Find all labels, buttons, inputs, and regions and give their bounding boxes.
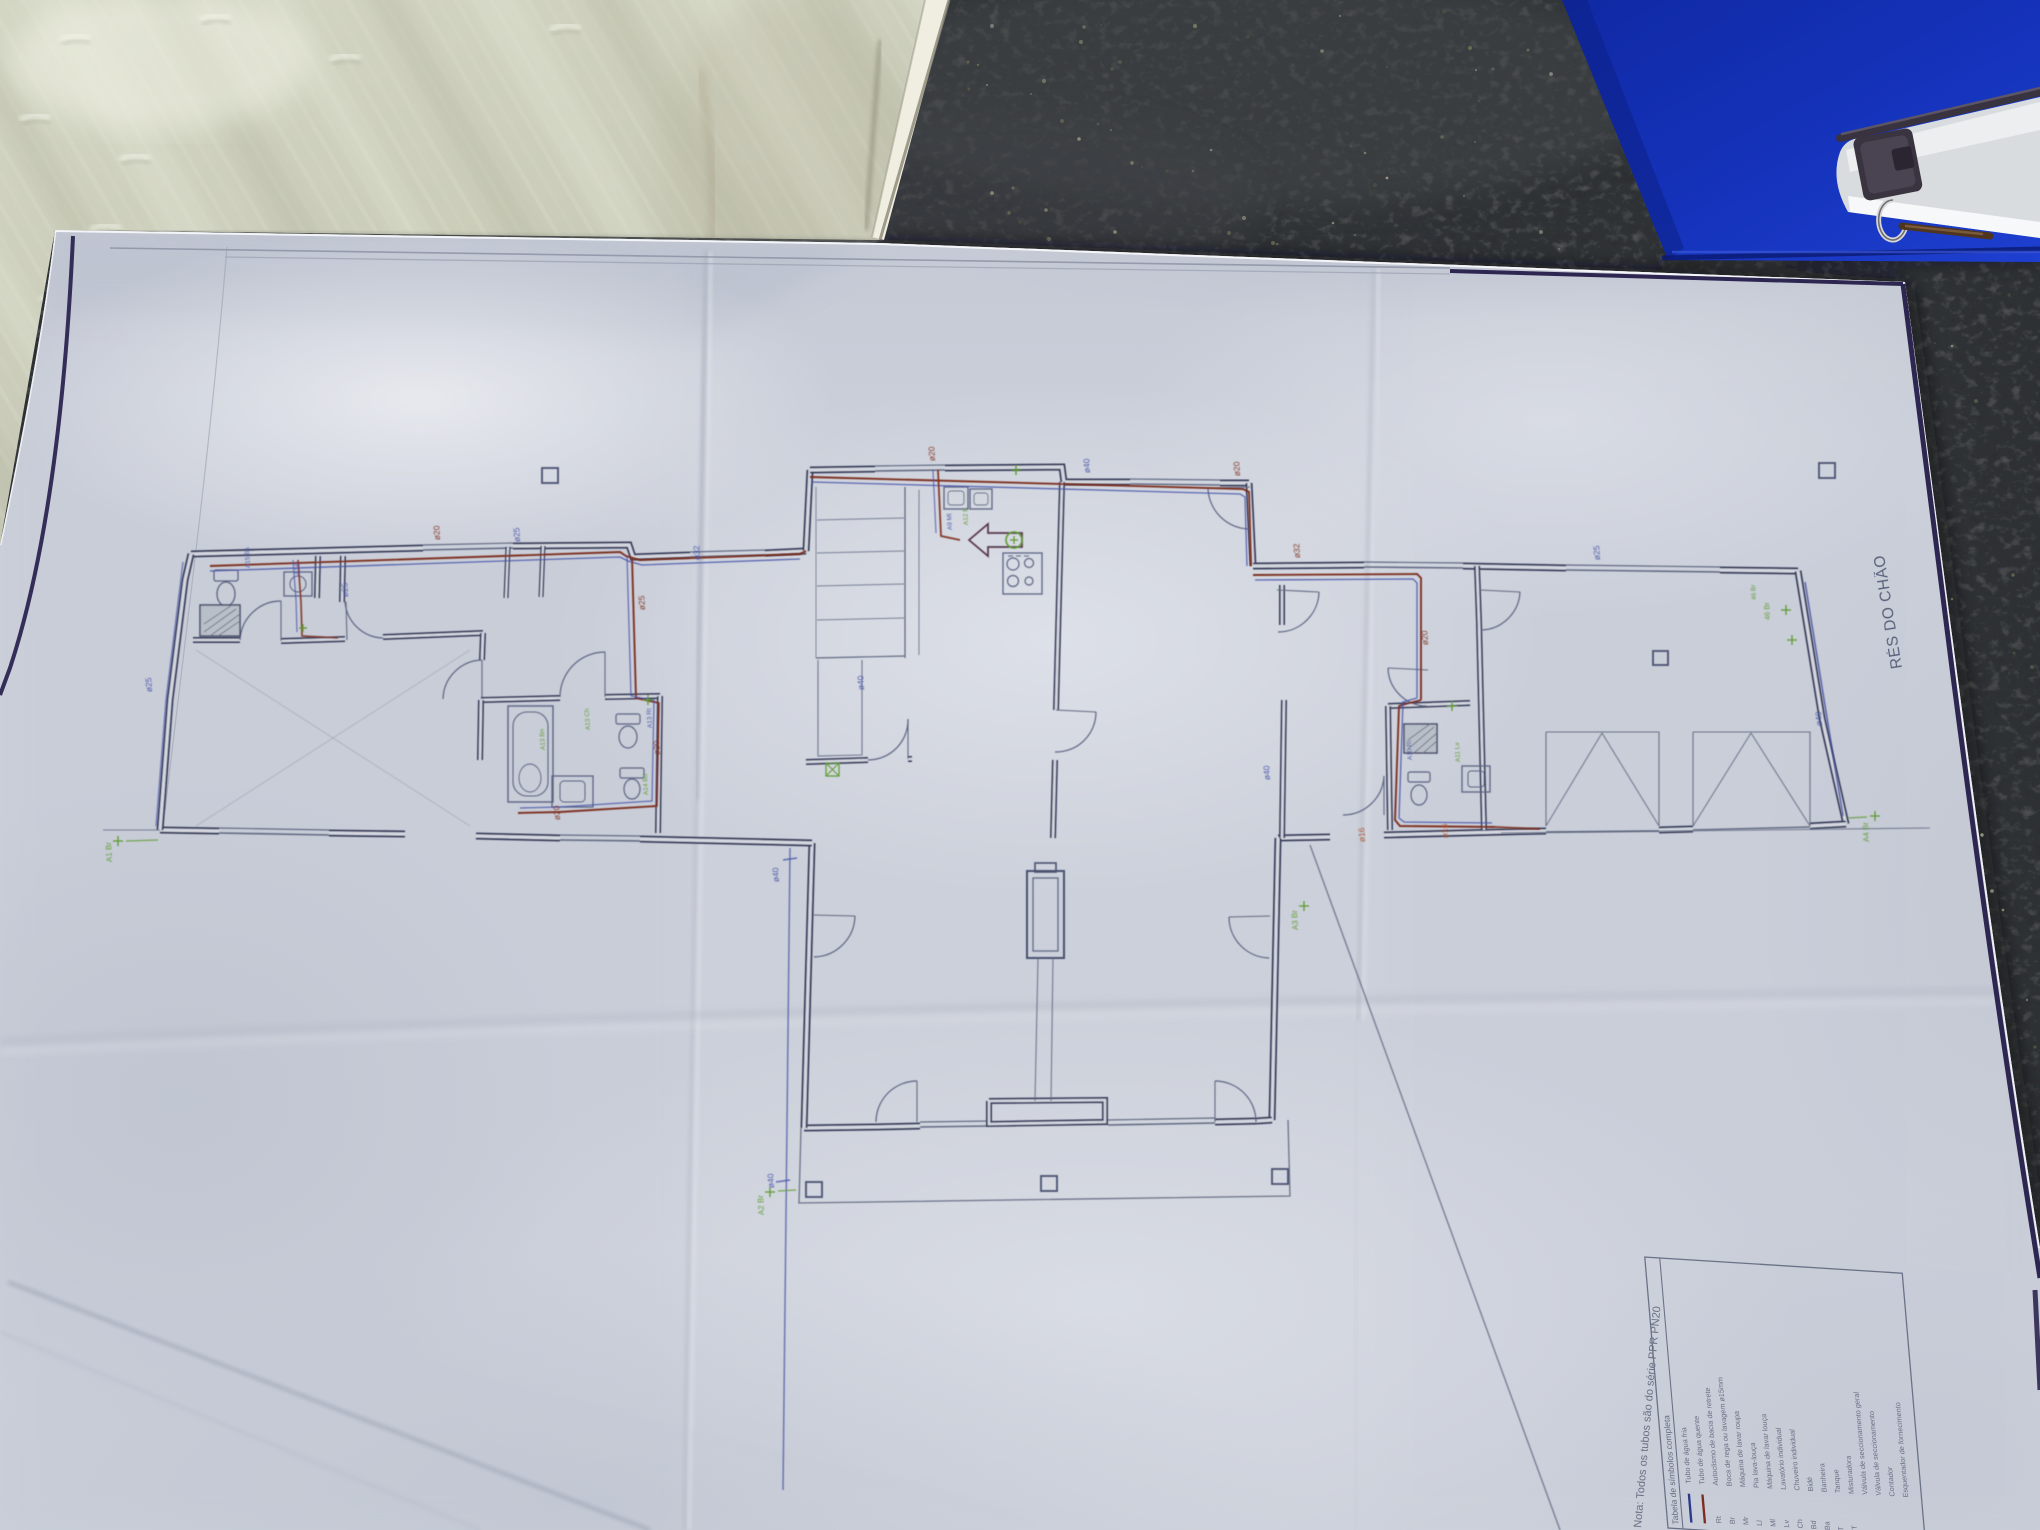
svg-text:46 Br: 46 Br bbox=[1750, 584, 1758, 601]
svg-text:ø20: ø20 bbox=[431, 525, 442, 540]
svg-text:Ba: Ba bbox=[1822, 1520, 1832, 1530]
svg-text:Bidé: Bidé bbox=[1805, 1477, 1815, 1492]
svg-text:A2 Br: A2 Br bbox=[756, 1195, 766, 1216]
svg-text:ø20: ø20 bbox=[1231, 461, 1242, 476]
svg-text:ø20: ø20 bbox=[1419, 630, 1430, 645]
svg-text:Lv: Lv bbox=[1782, 1519, 1792, 1528]
svg-text:A4 Br: A4 Br bbox=[1861, 822, 1871, 843]
svg-text:ø25: ø25 bbox=[1591, 545, 1602, 560]
svg-text:A13 Ch: A13 Ch bbox=[584, 708, 592, 730]
svg-text:A9 Ml: A9 Ml bbox=[946, 513, 954, 531]
svg-text:ø32: ø32 bbox=[691, 545, 702, 560]
svg-text:ø20: ø20 bbox=[926, 446, 937, 461]
svg-text:ø20: ø20 bbox=[651, 740, 662, 755]
svg-text:A10 Rt: A10 Rt bbox=[1406, 740, 1414, 760]
svg-text:ø16: ø16 bbox=[1356, 827, 1367, 842]
svg-text:Ll: Ll bbox=[1755, 1520, 1764, 1527]
svg-text:Mr: Mr bbox=[1741, 1516, 1751, 1526]
svg-text:ø32: ø32 bbox=[1291, 543, 1302, 558]
svg-text:Ch: Ch bbox=[1795, 1519, 1805, 1529]
svg-text:A13 Bn: A13 Bn bbox=[539, 728, 547, 750]
svg-text:46 Br: 46 Br bbox=[1762, 601, 1772, 620]
svg-text:A15 Bs: A15 Bs bbox=[244, 546, 252, 568]
svg-text:A13 Rt: A13 Rt bbox=[646, 708, 654, 728]
svg-text:A14 Bd: A14 Bd bbox=[642, 773, 650, 795]
svg-text:ø40: ø40 bbox=[855, 675, 866, 690]
svg-text:A16: A16 bbox=[294, 562, 302, 575]
svg-text:Bd: Bd bbox=[1809, 1520, 1819, 1529]
svg-text:ø25: ø25 bbox=[339, 582, 350, 597]
svg-text:Rt: Rt bbox=[1714, 1516, 1724, 1524]
svg-text:Br: Br bbox=[1727, 1516, 1737, 1524]
svg-text:A12 E: A12 E bbox=[962, 507, 970, 526]
svg-text:ø25: ø25 bbox=[636, 595, 647, 610]
svg-text:A11 Lv: A11 Lv bbox=[1454, 741, 1462, 762]
svg-text:Ml: Ml bbox=[1768, 1518, 1778, 1527]
svg-text:A3 Br: A3 Br bbox=[1290, 910, 1300, 931]
svg-text:ø25: ø25 bbox=[511, 527, 522, 542]
svg-text:ø40: ø40 bbox=[770, 867, 781, 882]
svg-text:ø40: ø40 bbox=[1261, 765, 1272, 780]
svg-text:A1 Br: A1 Br bbox=[104, 842, 114, 863]
svg-text:ø25: ø25 bbox=[143, 677, 154, 692]
svg-text:ø40: ø40 bbox=[1081, 458, 1092, 473]
svg-text:ø16: ø16 bbox=[1439, 823, 1450, 838]
svg-text:ø40: ø40 bbox=[1813, 711, 1824, 726]
svg-text:ø40: ø40 bbox=[765, 1173, 776, 1188]
svg-text:ø20: ø20 bbox=[551, 805, 562, 820]
